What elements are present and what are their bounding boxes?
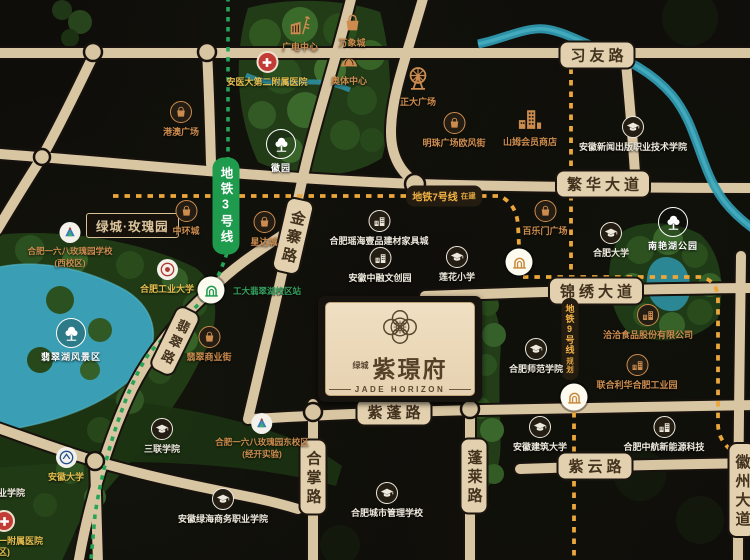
poi-xingda-city: 星达城	[250, 211, 277, 248]
poi-mixc-mall: 万象城	[338, 12, 365, 49]
graduation-cap-icon	[525, 338, 547, 360]
quatrefoil-emblem-icon	[378, 305, 422, 349]
graduation-cap-icon	[151, 418, 173, 440]
shopping-bag-icon	[534, 200, 556, 222]
poi-hefei-normal-university: 合肥师范学院	[509, 338, 563, 375]
poi-hfut: 合肥工业大学	[140, 259, 194, 295]
tree-icon	[266, 129, 296, 159]
poi-avic-new-energy: 合肥中航新能源科技	[623, 416, 704, 453]
poi-huiyuan-park: 徽园	[266, 129, 296, 174]
metro-line9-name: 地铁9号线	[564, 304, 577, 355]
shopping-bag-icon	[170, 101, 192, 123]
university-seal-icon	[55, 447, 76, 468]
poi-sams-club: 山姆会员商店	[503, 105, 557, 148]
road-label-penglai: 蓬莱路	[460, 438, 489, 515]
tree-icon	[56, 318, 86, 348]
road-label-fanhua: 繁华大道	[555, 170, 651, 199]
metro-line3-label: 地铁3号线	[213, 158, 240, 255]
trees-topleft	[52, 0, 92, 47]
poi-anyi-2nd-hospital: 安医大第二附属医院	[226, 51, 307, 88]
brand-card-inner: 绿城 紫璟府 JADE HORIZON	[325, 302, 475, 396]
poi-feicui-commercial-street: 翡翠商业街	[186, 326, 231, 363]
poi-gangao-plaza: 港澳广场	[163, 101, 199, 138]
road-label-xiyou: 习友路	[558, 41, 635, 70]
poi-sanlian-college: 三联学院	[144, 418, 180, 455]
poi-168-school-east: 合肥一六八玫瑰园东校区 (经开实验)	[215, 413, 309, 460]
building-icon	[369, 247, 391, 269]
metro-line7-status: 在建	[461, 191, 476, 202]
location-map: 习友路 繁华大道 锦绣大道 紫蓬路 紫云路 蓬莱路 合掌路 金寨路 翡翠路 徽州…	[0, 0, 750, 560]
project-name: 紫璟府	[373, 350, 448, 384]
antenna-building-icon	[287, 12, 313, 38]
school-crest-icon	[251, 413, 272, 434]
rule-left	[329, 389, 351, 390]
shopping-bag-icon	[198, 326, 220, 348]
brand-name-row: 绿城 紫璟府	[353, 350, 448, 384]
university-seal-icon	[156, 259, 177, 280]
metro-line7-label: 地铁7号线在建	[406, 186, 482, 207]
poi-bailemen-plaza: 百乐门广场	[522, 200, 567, 237]
poi-lvhai-business-college: 安徽绿海商务职业学院	[178, 488, 268, 525]
road-label-ziyun: 紫云路	[556, 452, 633, 481]
road-label-huizhou: 徽州大道	[728, 442, 750, 538]
poi-anhui-university: 安徽大学	[48, 447, 84, 483]
brand-english-row: JADE HORIZON	[329, 385, 471, 394]
poi-unilever-industrial-park: 联合利华合肥工业园	[596, 354, 677, 391]
poi-yipin-furniture-city: 合肥瑶海壹品建材家具城	[329, 210, 428, 247]
stadium-icon	[335, 52, 363, 72]
buildings-icon	[516, 105, 544, 133]
building-icon	[626, 354, 648, 376]
building-icon	[368, 210, 390, 232]
poi-press-college: 安徽新闻出版职业技术学院	[579, 116, 687, 153]
poi-mingzhu-plaza: 明珠广场欧风街	[422, 112, 485, 149]
poi-zhongrong-creative-park: 安徽中融文创园	[348, 247, 411, 284]
ferris-wheel-icon	[404, 65, 432, 93]
metro-station-line7-icon	[506, 249, 533, 276]
poi-feicuihu-scenic-area: 翡翠湖风景区	[41, 318, 101, 363]
hospital-cross-icon	[256, 51, 278, 73]
graduation-cap-icon	[376, 482, 398, 504]
metro-station-line3-label: 工大翡翠湖校区站	[233, 285, 301, 297]
poi-hefei-university: 合肥大学	[593, 222, 629, 259]
metro-line9-label: 地铁9号线规划	[562, 298, 579, 380]
poi-anhui-jianzhu-university: 安徽建筑大学	[513, 416, 567, 453]
graduation-cap-icon	[529, 416, 551, 438]
poi-lianhua-primary-school: 莲花小学	[439, 246, 475, 283]
graduation-cap-icon	[446, 246, 468, 268]
poi-zhengda-plaza: 正大广场	[400, 65, 436, 108]
metro-station-line9-icon	[561, 384, 588, 411]
shopping-bag-icon	[443, 112, 465, 134]
poi-city-management-school: 合肥城市管理学校	[351, 482, 423, 519]
poi-qiaqia-food: 洽洽食品股份有限公司	[603, 304, 693, 341]
brand-company: 绿城	[353, 362, 369, 370]
rule-right	[449, 389, 471, 390]
poi-olympic-center: 奥体中心	[331, 52, 367, 87]
poi-zhonghuan-city: 中环城	[172, 200, 199, 237]
poi-broadcast-center: 广电中心	[282, 12, 318, 53]
tree-icon	[658, 207, 688, 237]
graduation-cap-icon	[600, 222, 622, 244]
shopping-bag-icon	[253, 211, 275, 233]
poi-168-school-west: 合肥一六八玫瑰园学校 (西校区)	[27, 222, 112, 269]
metro-line9-status: 规划	[565, 357, 576, 374]
shopping-bag-icon	[341, 12, 363, 34]
project-name-en: JADE HORIZON	[355, 385, 445, 394]
poi-fragment-college: 业学院	[0, 486, 25, 499]
poi-fragment-hospital-2: 区)	[0, 545, 10, 558]
school-crest-icon	[59, 222, 80, 243]
poi-nanyanhu-park: 南艳湖公园	[648, 207, 698, 252]
metro-line7-name: 地铁7号线	[412, 189, 458, 204]
graduation-cap-icon	[212, 488, 234, 510]
project-brand-card: 绿城 紫璟府 JADE HORIZON	[318, 296, 482, 402]
building-icon	[653, 416, 675, 438]
metro-station-line3-icon	[198, 277, 225, 304]
building-icon	[637, 304, 659, 326]
graduation-cap-icon	[622, 116, 644, 138]
shopping-bag-icon	[175, 200, 197, 222]
